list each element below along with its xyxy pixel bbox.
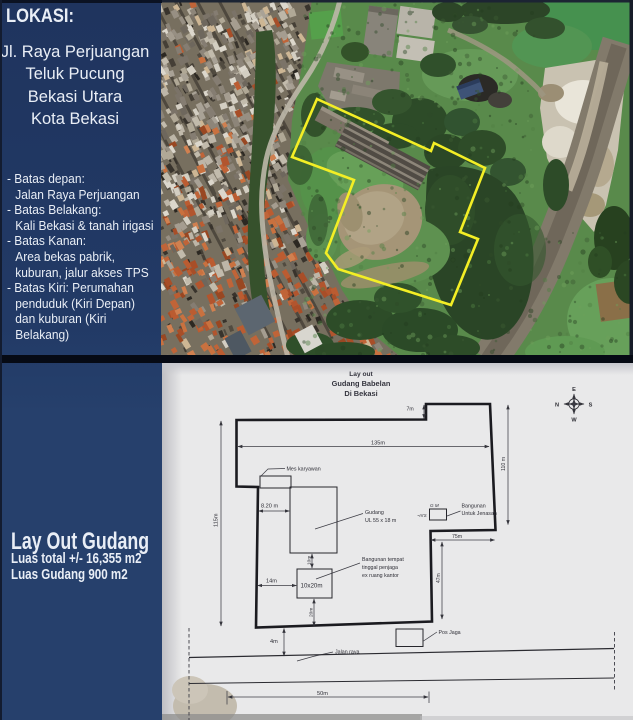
svg-text:ex ruang kantor: ex ruang kantor xyxy=(362,573,399,579)
svg-text:Di Bekasi: Di Bekasi xyxy=(344,389,377,398)
svg-text:Gudang Babelan: Gudang Babelan xyxy=(332,379,391,388)
svg-text:14m: 14m xyxy=(266,579,277,585)
svg-text:Bangunan: Bangunan xyxy=(462,504,486,510)
svg-text:115m: 115m xyxy=(214,513,220,527)
svg-text:S: S xyxy=(589,403,593,409)
svg-text:Untuk Jenasah: Untuk Jenasah xyxy=(462,511,497,517)
svg-text:75m: 75m xyxy=(452,534,462,540)
svg-text:10x20m: 10x20m xyxy=(301,583,323,590)
svg-text:Gudang: Gudang xyxy=(365,510,384,516)
svg-text:Jalan raya: Jalan raya xyxy=(335,650,359,656)
svg-text:~m'S: ~m'S xyxy=(417,513,427,518)
svg-text:4m: 4m xyxy=(270,639,278,645)
svg-text:47m: 47m xyxy=(436,573,442,583)
svg-text:20m: 20m xyxy=(309,608,315,617)
svg-text:135m: 135m xyxy=(371,441,385,447)
svg-text:7m: 7m xyxy=(407,407,414,413)
svg-text:110 m: 110 m xyxy=(501,457,507,471)
svg-text:Bangunan tempat: Bangunan tempat xyxy=(362,557,404,563)
svg-text:W: W xyxy=(571,418,577,424)
svg-text:N: N xyxy=(555,403,559,409)
svg-text:tinggal penjaga: tinggal penjaga xyxy=(362,565,398,571)
svg-text:G M: G M xyxy=(430,503,439,508)
svg-text:Pos Jaga: Pos Jaga xyxy=(439,630,461,636)
svg-text:UL 55 x 18 m: UL 55 x 18 m xyxy=(365,518,397,524)
svg-text:10m: 10m xyxy=(307,556,313,565)
svg-text:E: E xyxy=(572,387,576,393)
svg-text:Lay out: Lay out xyxy=(349,371,373,378)
svg-text:Mes karyawan: Mes karyawan xyxy=(287,467,321,473)
svg-text:8.20 m: 8.20 m xyxy=(261,504,278,510)
svg-text:50m: 50m xyxy=(317,691,328,697)
